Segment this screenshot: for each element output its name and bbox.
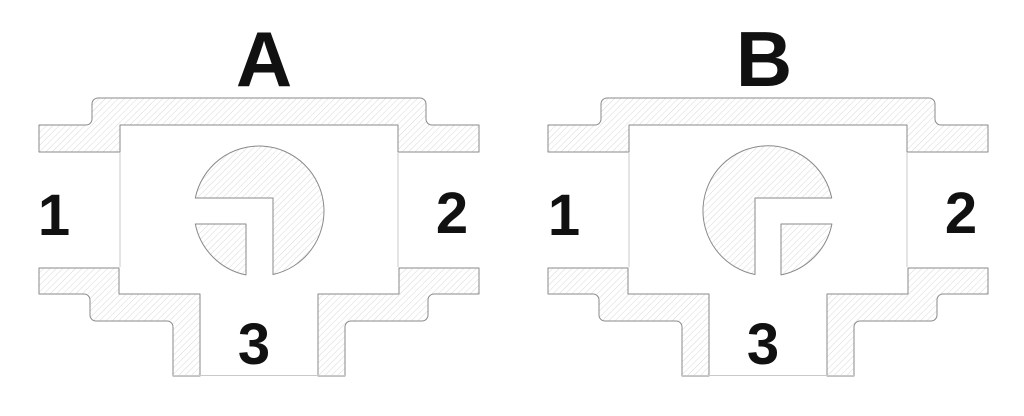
ball-a-wedge-segment (195, 224, 246, 275)
port-3-label-a: 3 (238, 312, 270, 377)
diagram-a-title: A (236, 15, 292, 103)
diagram-b: B 1 2 3 (548, 15, 988, 377)
port-2-label-b: 2 (945, 181, 977, 246)
ball-b-wedge-segment (781, 224, 832, 275)
port-1-label-b: 1 (548, 183, 580, 248)
valve-diagram-svg: A 1 2 3 B 1 2 3 (0, 0, 1024, 416)
valve-cross-section-figure: A 1 2 3 B 1 2 3 (0, 0, 1024, 416)
port-1-label-a: 1 (38, 183, 70, 248)
port-3-label-b: 3 (747, 312, 779, 377)
diagram-b-title: B (736, 15, 792, 103)
port-2-label-a: 2 (436, 181, 468, 246)
diagram-a: A 1 2 3 (38, 15, 479, 377)
